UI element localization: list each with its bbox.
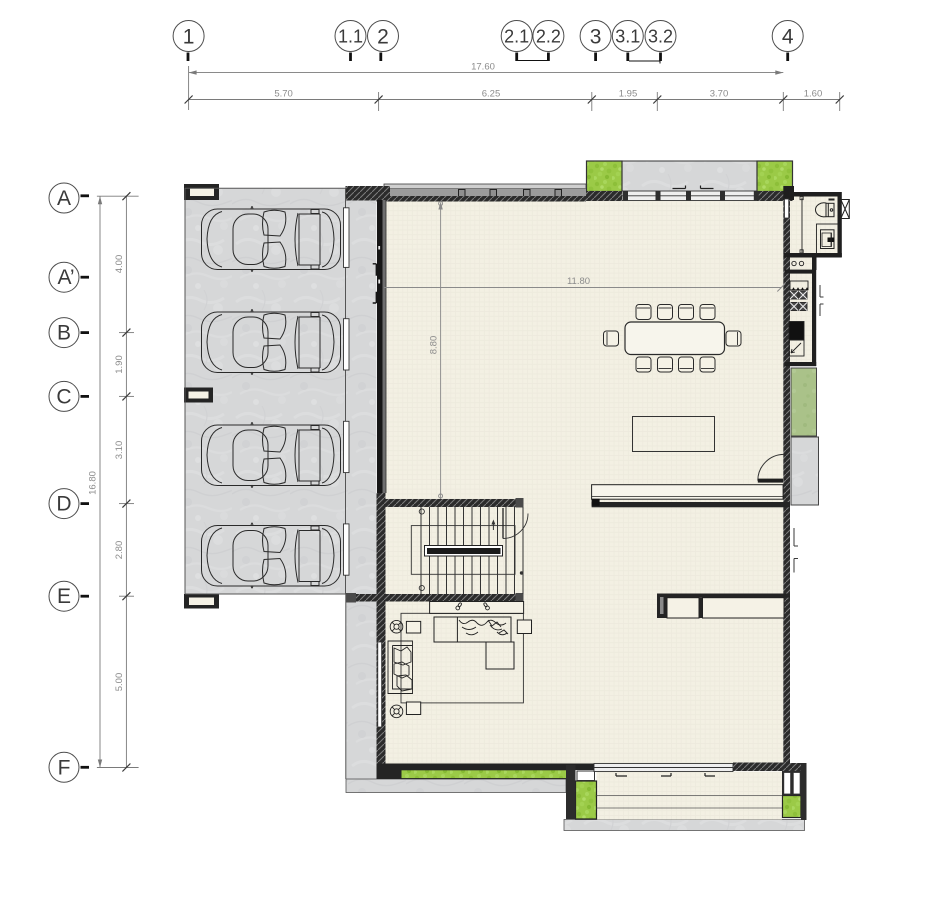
svg-text:4.00: 4.00 (114, 255, 125, 274)
svg-text:3.2: 3.2 (648, 27, 673, 47)
svg-text:1: 1 (183, 26, 195, 49)
svg-text:16.80: 16.80 (88, 471, 99, 495)
svg-text:B: B (57, 322, 71, 345)
svg-text:6.25: 6.25 (482, 89, 501, 100)
svg-text:3.10: 3.10 (114, 441, 125, 460)
svg-text:1.1: 1.1 (338, 27, 363, 47)
svg-text:A’: A’ (57, 266, 74, 289)
svg-text:2.1: 2.1 (504, 27, 529, 47)
svg-text:F: F (58, 756, 71, 779)
svg-text:2: 2 (377, 26, 389, 49)
svg-text:D: D (56, 493, 71, 516)
svg-text:4: 4 (782, 26, 794, 49)
svg-text:E: E (57, 585, 71, 608)
svg-text:1.60: 1.60 (804, 89, 823, 100)
svg-text:1.90: 1.90 (114, 355, 125, 374)
svg-text:3.70: 3.70 (710, 89, 729, 100)
svg-text:A: A (57, 187, 71, 210)
svg-text:2.2: 2.2 (536, 27, 561, 47)
svg-text:5.00: 5.00 (114, 673, 125, 692)
svg-text:2.80: 2.80 (114, 541, 125, 560)
svg-text:1.95: 1.95 (619, 89, 638, 100)
svg-text:3.1: 3.1 (615, 27, 640, 47)
svg-text:8.80: 8.80 (429, 336, 440, 355)
svg-text:5.70: 5.70 (274, 89, 293, 100)
svg-text:17.60: 17.60 (471, 62, 495, 73)
svg-text:3: 3 (590, 26, 602, 49)
svg-text:11.80: 11.80 (567, 276, 590, 287)
svg-text:C: C (56, 385, 71, 408)
